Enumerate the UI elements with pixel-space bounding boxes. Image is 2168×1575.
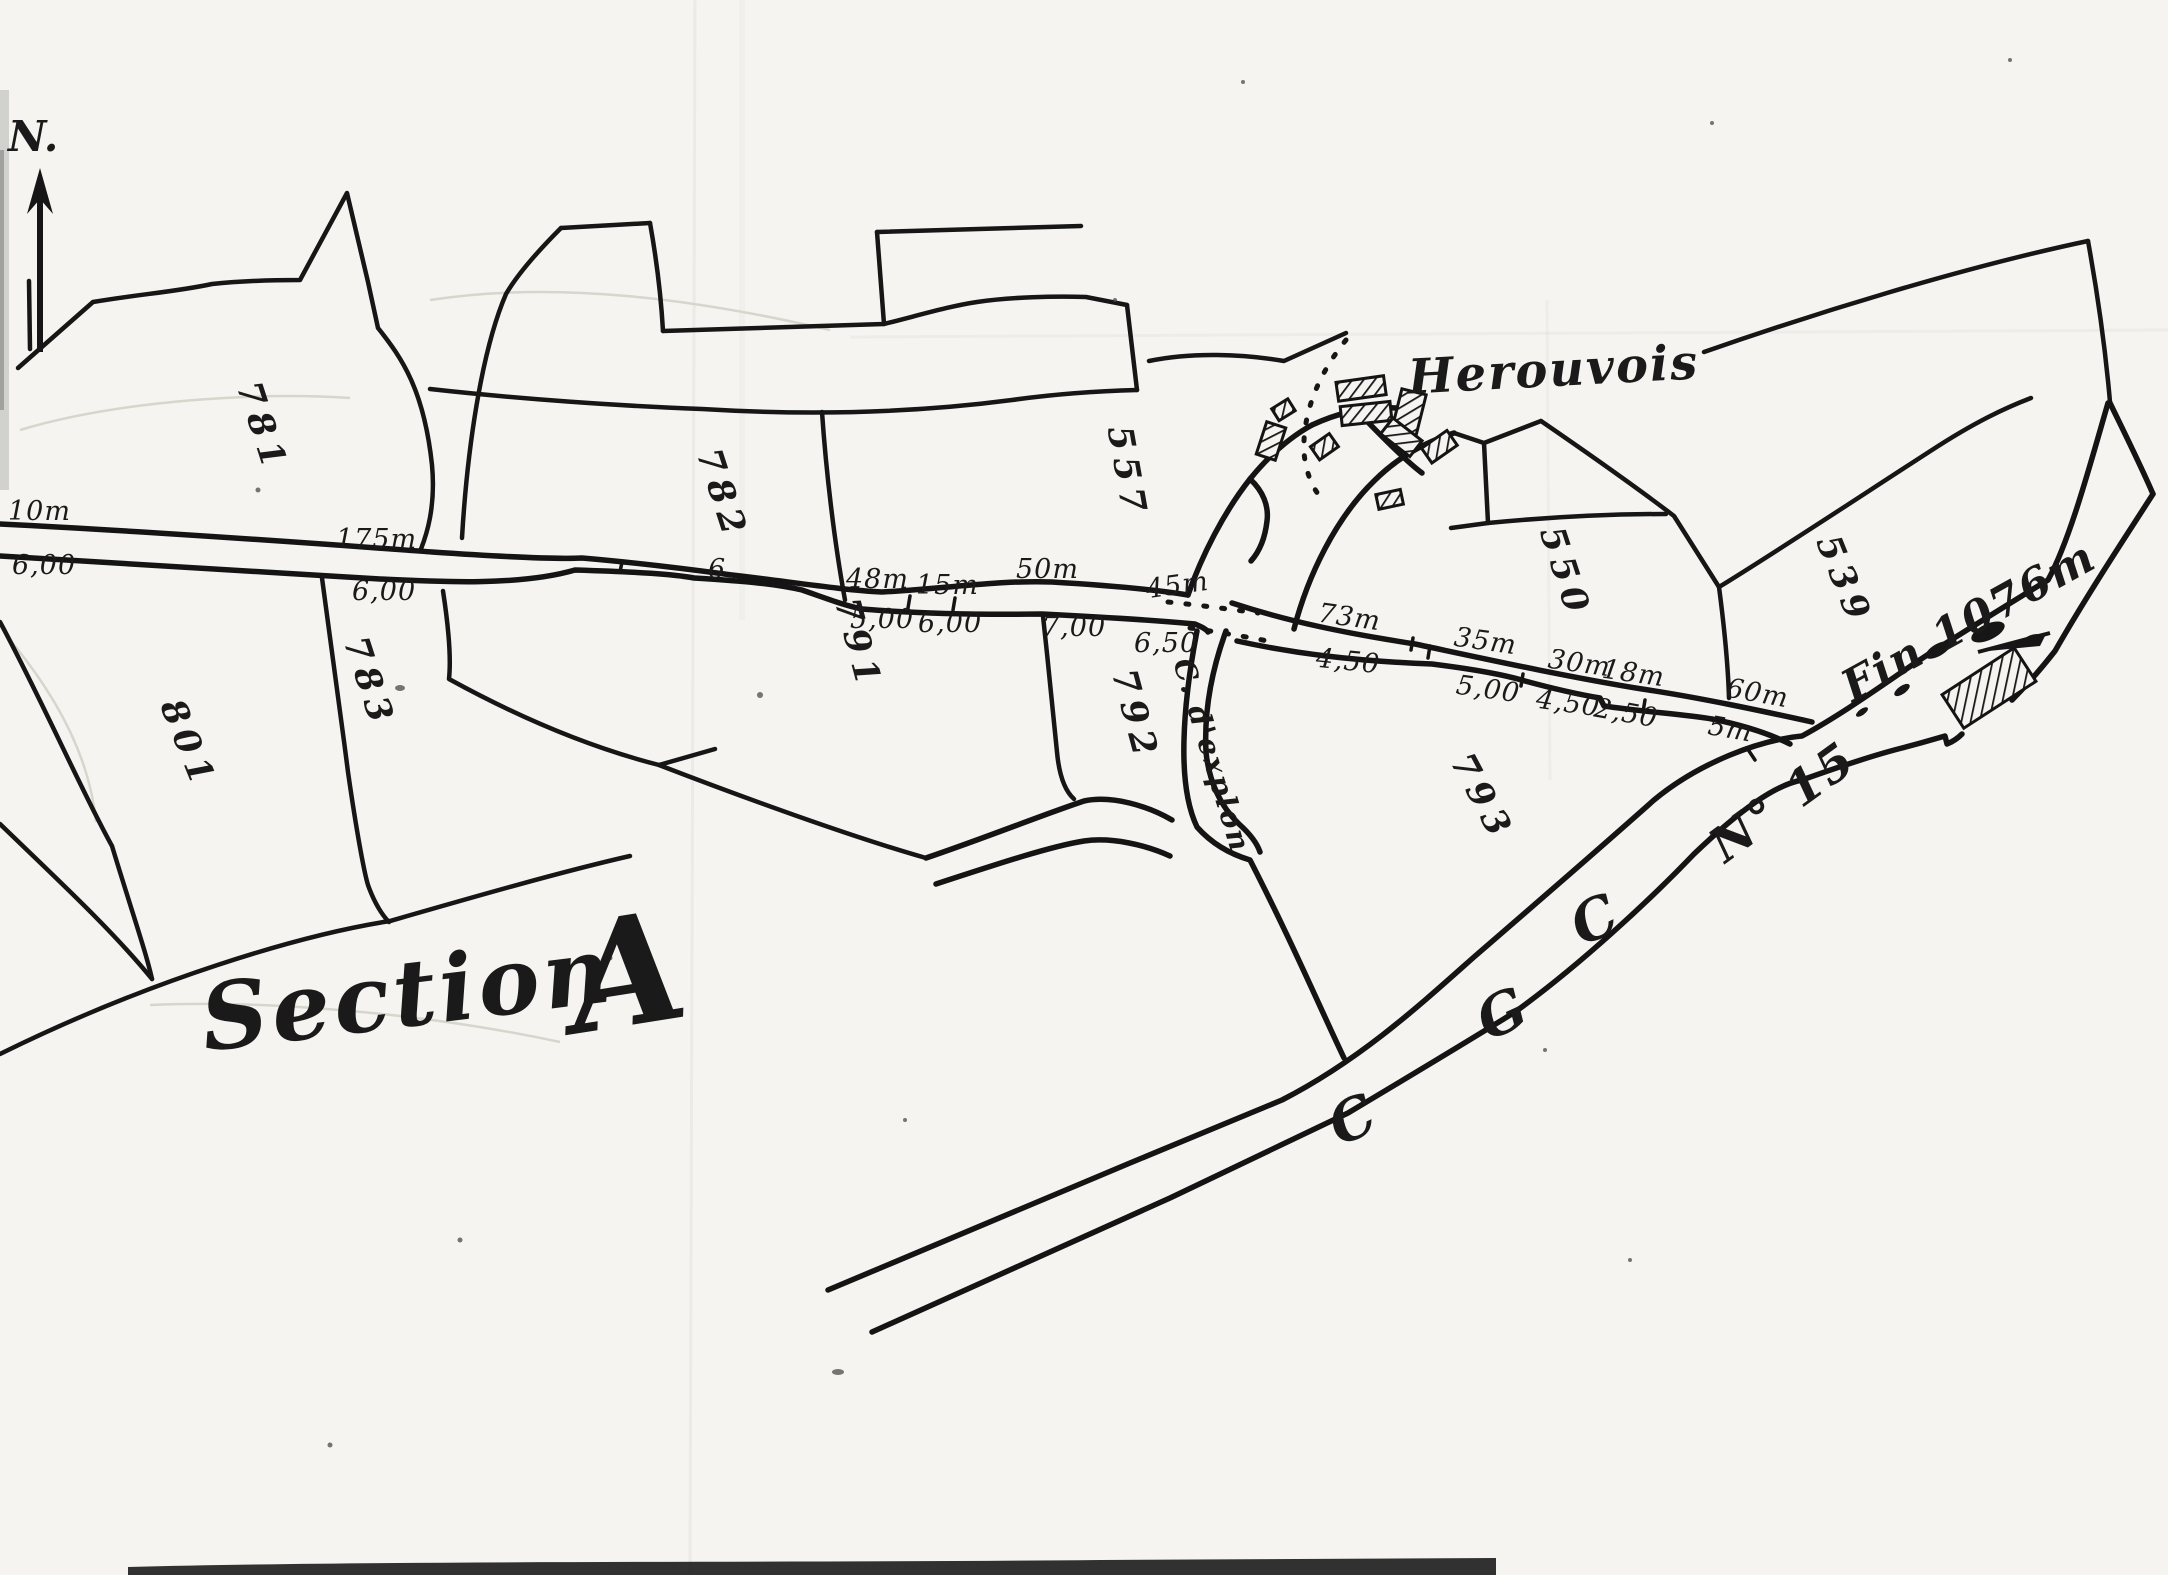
section-title-letter: A	[557, 890, 695, 1056]
measurement-label: 35m	[1452, 624, 1518, 660]
measurement-label: 50m	[1016, 556, 1079, 583]
measurement-label: 10m	[8, 498, 71, 525]
measurement-label: 6	[708, 556, 726, 583]
measurement-label: 6,50	[1134, 630, 1198, 657]
measurement-label: 15m	[916, 572, 979, 599]
measurement-label: 6,00	[918, 610, 982, 637]
measurement-label: 7,00	[1042, 614, 1106, 641]
hamlet-name: Herouvois	[1407, 338, 1700, 401]
measurement-label: 6,00	[12, 552, 76, 579]
measurement-label: 5m	[1706, 712, 1755, 746]
scan-bottom-edge	[128, 1558, 1496, 1575]
measurement-label: 175m	[336, 526, 417, 553]
roadside-building	[1942, 648, 2036, 728]
measurement-label: 5,00	[850, 606, 914, 633]
north-label: N.	[8, 116, 58, 158]
measurement-label: 5,00	[1454, 672, 1521, 708]
measurement-label: 73m	[1316, 600, 1382, 636]
measurement-label: 18m	[1600, 656, 1666, 692]
measurement-label: 48m	[846, 566, 909, 593]
cadastral-map-scan: N. Section A Herouvois C. d'explon C G C…	[0, 0, 2168, 1575]
measurement-label: 4,50	[1315, 645, 1382, 679]
measurement-label: 4,50	[1534, 686, 1601, 722]
measurement-label: 6,00	[352, 578, 416, 605]
